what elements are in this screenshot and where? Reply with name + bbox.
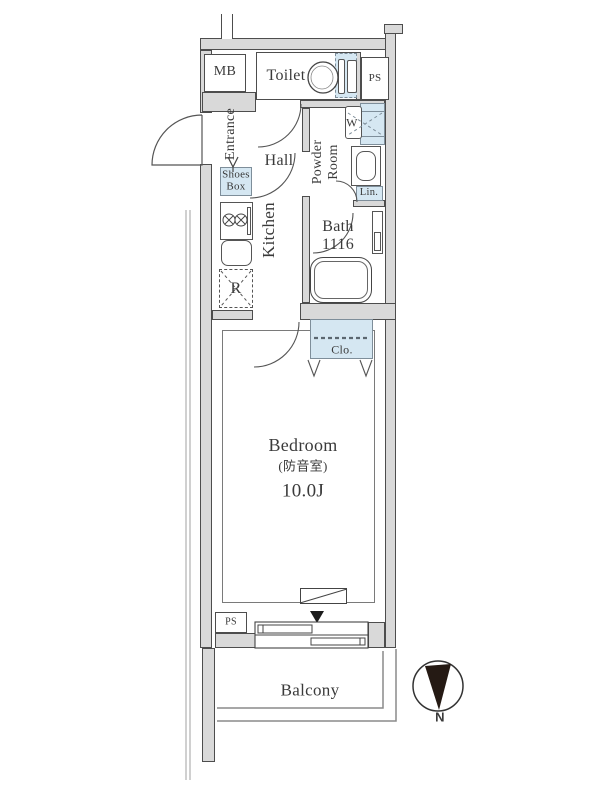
sliding-window-pane-right [311, 638, 365, 645]
label-bedroom-note: (防音室) [278, 460, 327, 475]
label-toilet: Toilet [267, 67, 306, 85]
label-hall: Hall [265, 152, 294, 170]
closet-door-mark-right [360, 360, 372, 376]
label-ps-top: PS [369, 72, 382, 84]
label-bedroom-name: Bedroom [268, 435, 337, 455]
entrance-door-arc [152, 115, 202, 165]
label-bath: Bath 1116 [322, 218, 354, 254]
label-bedroom-size: 10.0J [282, 480, 324, 501]
label-kitchen: Kitchen [259, 202, 279, 258]
window-direction-marker [310, 611, 324, 623]
bedroom-counter-diagonal [300, 589, 347, 603]
label-entrance: Entrance [223, 108, 239, 160]
label-mb: MB [214, 64, 236, 80]
label-linen: Lin. [360, 187, 378, 199]
label-compass-north: N [435, 711, 445, 726]
label-shoes-box: Shoes Box [222, 169, 250, 194]
toilet-door-arc [258, 104, 301, 147]
label-washer: W [346, 116, 358, 129]
label-closet: Clo. [331, 343, 353, 356]
label-refrigerator: R [231, 280, 242, 298]
label-powder-room: Powder Room [310, 140, 342, 185]
bedroom-door-arc [254, 322, 299, 367]
label-ps-bottom: PS [225, 616, 237, 627]
label-balcony: Balcony [281, 680, 340, 699]
floor-plan: MB Toilet PS Entrance Shoes Box Hall Pow… [0, 0, 600, 800]
closet-door-mark-left [308, 360, 320, 376]
sliding-window-pane-left [258, 625, 312, 633]
toilet-bowl [308, 62, 338, 93]
